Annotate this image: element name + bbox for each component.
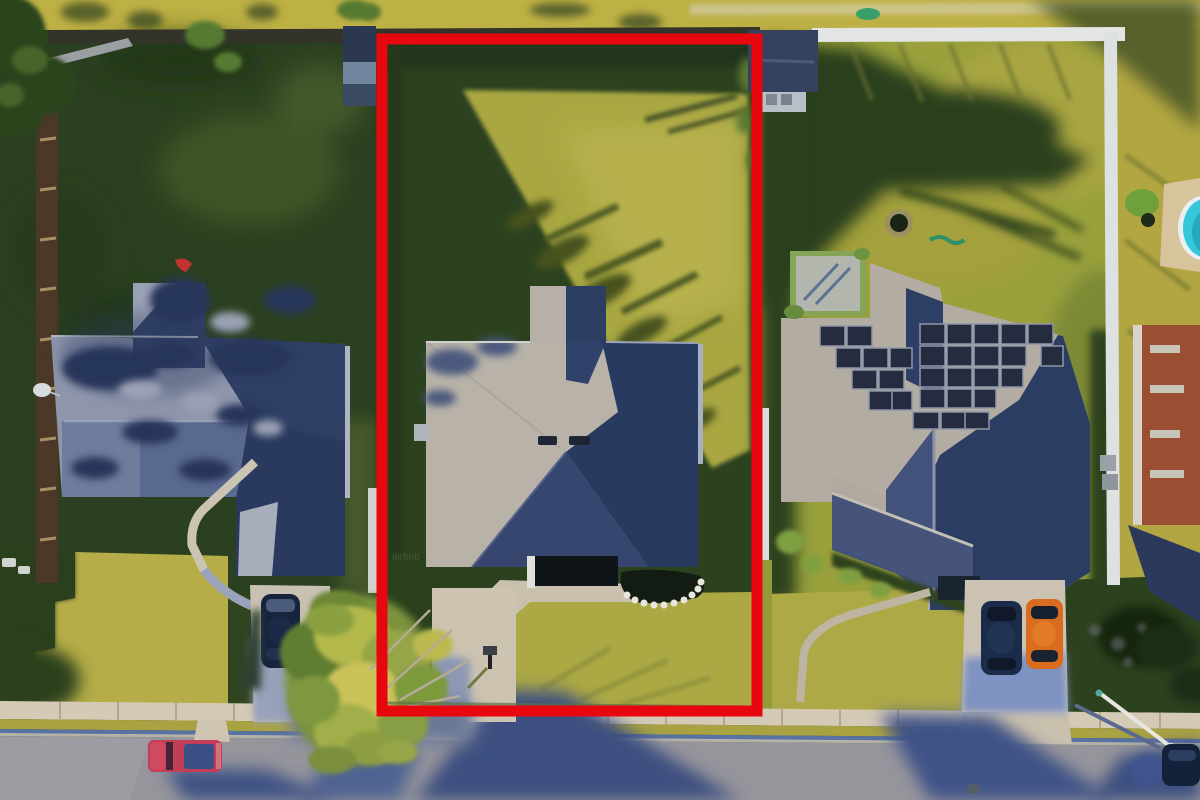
svg-text:airbnb: airbnb <box>392 552 420 563</box>
